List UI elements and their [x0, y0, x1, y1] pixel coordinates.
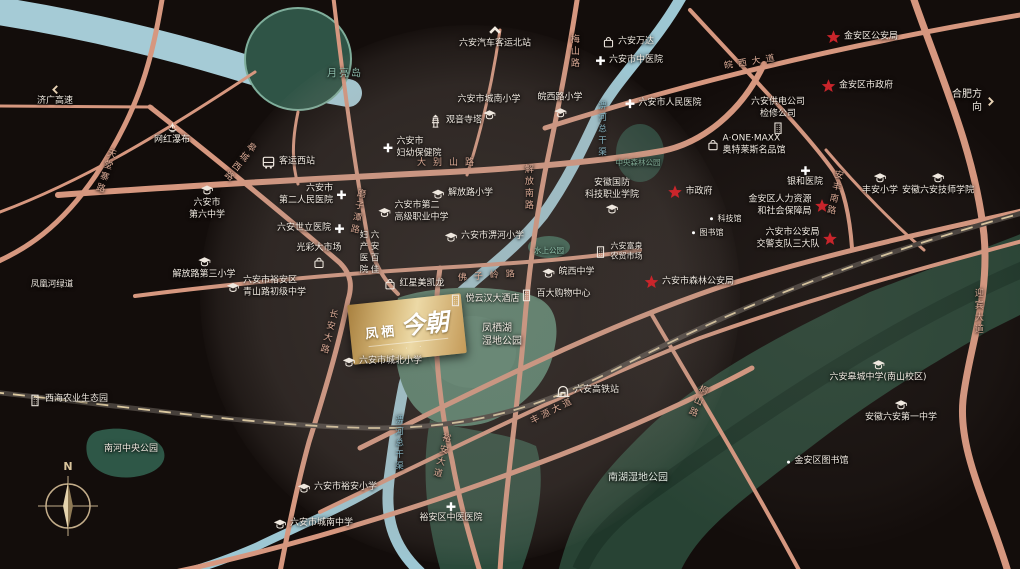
cap-icon	[553, 105, 567, 119]
cap-icon	[297, 481, 311, 495]
poi-wanxi-middle-school: 皖西中学	[541, 266, 594, 280]
bag-icon	[706, 139, 719, 152]
maternity-care-hospital-label: 六安市 妇幼保健院	[396, 136, 441, 159]
poi-jiguang-expressway-sign: 济广高速	[37, 84, 73, 108]
poi-moon-island: 月亮岛	[327, 68, 363, 81]
no2-vocational-school-label: 六安市第二 高级职业中学	[394, 200, 448, 223]
dot-icon	[691, 230, 697, 236]
poi-wanxilu-primary: 皖西路小学	[537, 93, 582, 120]
poi-hefei-direction-sign: 合肥方向	[948, 88, 996, 114]
cap-icon	[894, 398, 908, 412]
nanhe-central-park-label: 南河中央公园	[104, 444, 158, 456]
baida-shopping-center-label: 百大购物中心	[536, 289, 590, 301]
poi-anhui-luan-no1-middle-school: 安徽六安第一中学	[865, 398, 937, 425]
poi-wanda-mall: 六安万达	[602, 36, 654, 49]
cross-icon	[334, 224, 345, 235]
cap-icon	[482, 107, 496, 121]
jiguang-expressway-sign-label: 济广高速	[37, 96, 73, 108]
changan-road-label: 长安大路	[316, 307, 339, 356]
fengyuan-avenue-label: 丰源大道	[529, 396, 577, 428]
poi-no2-vocational-school: 六安市第二 高级职业中学	[377, 200, 448, 223]
poi-anfengnan-road: 安丰南路	[822, 168, 843, 217]
train-icon	[555, 383, 571, 399]
poi-city-hall: 市政府	[667, 185, 712, 200]
fenghuang-river-greenway-label: 凤凰河绿道	[31, 279, 74, 290]
yunhan-hotel-label: 悦云汉大酒店	[465, 294, 519, 306]
north-bus-station-sign-label: 六安汽车客运北站	[459, 39, 531, 51]
poi-pihe-main-channel-south: 淠河总干渠	[392, 415, 403, 473]
cross-icon	[799, 165, 810, 176]
aone-maxx-outlets-label: A·ONE·MAXX 奥特莱斯名品馆	[722, 133, 785, 156]
poi-tcm-hospital: 六安市中医院	[595, 55, 663, 67]
poi-chengbei-primary: 六安市城北小学	[342, 355, 422, 369]
building-icon	[448, 293, 462, 307]
yingbin-avenue-label: 迎宾大道	[971, 288, 983, 336]
cross-icon	[336, 190, 347, 201]
poi-yunhan-hotel: 悦云汉大酒店	[448, 293, 519, 307]
tongshan-road-label: 桐山路	[683, 382, 708, 420]
poi-yingbin-avenue: 迎宾大道	[971, 288, 983, 336]
poi-wanghong-waterfall: 网红瀑布	[154, 121, 190, 147]
fuquan-farmers-market-label: 六安富泉 农贸市场	[611, 242, 643, 263]
poi-guanyin-pagoda: 观音寺塔	[428, 114, 482, 129]
poi-qingshanlu-junior-middle-school: 六安市裕安区 青山路初级中学	[226, 275, 306, 298]
poi-gaochengxi-road: 皋城西路	[219, 138, 258, 183]
cap-icon	[431, 187, 445, 201]
poi-jiefanglu-primary: 解放路小学	[431, 187, 493, 201]
poi-xihai-agriculture-eco-park: 西海农业生态园	[28, 393, 108, 407]
forest-police-bureau-label: 六安市森林公安局	[662, 276, 734, 288]
gaochengxi-road-label: 皋城西路	[219, 138, 258, 183]
map-stage: 凤栖 今朝 · · · 济广高速六安汽车客运北站合肥方向网红瀑布客运西站月亮岛梅…	[0, 0, 1020, 569]
compass-rose-icon	[36, 474, 100, 538]
tiantangzhai-road-label: 天堂寨路	[91, 146, 117, 195]
chengbei-primary-label: 六安市城北小学	[359, 356, 422, 368]
poi-baida-shopping-center: 百大购物中心	[519, 288, 590, 302]
chev-right-icon	[985, 96, 996, 107]
poi-north-bus-station-sign: 六安汽车客运北站	[459, 24, 531, 51]
star-icon	[823, 232, 838, 247]
star-icon	[826, 30, 841, 45]
poi-hongxing-meikailong: 红星美凯龙	[383, 278, 444, 291]
cap-icon	[226, 280, 240, 294]
poi-baijia-maternity-hospital: 六安百佳 妇产医院	[357, 230, 379, 276]
jinan-district-govt-label: 金安区市政府	[839, 80, 893, 92]
cross-icon	[595, 56, 606, 67]
pagoda-icon	[428, 114, 443, 129]
guofang-tech-college-label: 安徽国防 科技职业学院	[585, 178, 639, 201]
cross-icon	[382, 143, 393, 154]
poi-nanhe-central-park: 南河中央公园	[104, 444, 158, 456]
cap-icon	[541, 266, 555, 280]
chev-up-icon	[488, 24, 502, 38]
no2-renmin-hospital-label: 六安市 第二人民医院	[279, 183, 333, 206]
wanghong-waterfall-label: 网红瀑布	[154, 135, 190, 147]
poi-nanhu-wetland-park: 南湖湿地公园	[608, 472, 668, 485]
library-label: 图书馆	[700, 228, 724, 238]
cap-icon	[873, 171, 887, 185]
bag-icon	[383, 278, 396, 291]
poi-renmin-hospital: 六安市人民医院	[624, 98, 701, 110]
no6-middle-school-label: 六安市 第六中学	[189, 198, 225, 221]
poi-fengqi-lake-wetland-park: 凤栖湖 湿地公园	[482, 322, 522, 348]
pihe-main-channel-north-label: 淠河总干渠	[595, 101, 606, 159]
chev-left-icon	[49, 84, 60, 95]
building-icon	[594, 245, 608, 259]
cross-icon	[624, 99, 635, 110]
cap-icon	[871, 358, 885, 372]
jiefangnan-road-label: 解放南路	[521, 164, 533, 212]
poi-changan-road: 长安大路	[316, 307, 339, 356]
poi-meishan-road: 梅山路	[567, 34, 579, 70]
building-icon	[519, 288, 533, 302]
shili-hospital-label: 六安世立医院	[277, 223, 331, 235]
poi-no6-middle-school: 六安市 第六中学	[189, 183, 225, 221]
nanhu-wetland-park-label: 南湖湿地公园	[608, 472, 668, 485]
jiefanglu-primary-label: 解放路小学	[448, 188, 493, 200]
poi-luan-hsr-station: 六安高铁站	[555, 383, 619, 399]
cross-icon	[445, 501, 456, 512]
baijia-maternity-hospital-label: 六安百佳 妇产医院	[357, 230, 379, 276]
fengqi-lake-wetland-park-label: 凤栖湖 湿地公园	[482, 322, 522, 348]
hefei-direction-sign-label: 合肥方向	[948, 88, 982, 114]
poi-chengnan-middle-school: 六安市城南中学	[273, 517, 353, 531]
poi-layer: 济广高速六安汽车客运北站合肥方向网红瀑布客运西站月亮岛梅山路六安万达六安市中医院…	[0, 0, 1020, 569]
poi-science-museum: 科技馆	[709, 214, 742, 224]
poi-forest-police-bureau: 六安市森林公安局	[644, 275, 734, 290]
hr-social-security-bureau-label: 金安区人力资源 和社会保障局	[748, 194, 811, 217]
wanxilu-primary-label: 皖西路小学	[537, 93, 582, 105]
poi-luan-technician-college: 安徽六安技师学院	[902, 171, 974, 198]
pihe-main-channel-south-label: 淠河总干渠	[392, 415, 403, 473]
luan-technician-college-label: 安徽六安技师学院	[902, 186, 974, 198]
wanda-mall-label: 六安万达	[618, 36, 654, 48]
gaocheng-middle-school-label: 六安皋城中学(南山校区)	[829, 373, 926, 385]
star-icon	[821, 79, 836, 94]
dot-icon	[785, 459, 791, 465]
chengnan-primary-label: 六安市城南小学	[457, 95, 520, 107]
qingshanlu-junior-middle-school-label: 六安市裕安区 青山路初级中学	[243, 275, 306, 298]
yuanqu-tcm-hospital-label: 裕安区中医医院	[419, 513, 482, 525]
cap-icon	[377, 205, 391, 219]
poi-jiefanglu-no3-primary: 解放路第三小学	[172, 255, 235, 282]
poi-power-supply-company: 六安供电公司 检修公司	[751, 97, 805, 135]
poi-yuanqu-tcm-hospital: 裕安区中医医院	[419, 501, 482, 525]
cap-icon	[605, 202, 619, 216]
hongxing-meikailong-label: 红星美凯龙	[399, 278, 444, 290]
poi-fengyuan-avenue: 丰源大道	[529, 396, 577, 428]
fountain-icon	[165, 121, 178, 134]
luan-hsr-station-label: 六安高铁站	[574, 385, 619, 397]
science-museum-label: 科技馆	[718, 214, 742, 224]
poi-pihe-main-channel-north: 淠河总干渠	[595, 101, 606, 159]
poi-shili-hospital: 六安世立医院	[277, 223, 345, 235]
cap-icon	[197, 255, 211, 269]
fengan-primary-label: 丰安小学	[862, 186, 898, 198]
dot-icon	[709, 216, 715, 222]
poi-pihe-primary: 六安市淠河小学	[444, 230, 524, 244]
cap-icon	[444, 230, 458, 244]
cap-icon	[273, 517, 287, 531]
poi-west-bus-station: 客运西站	[261, 155, 315, 170]
poi-library: 图书馆	[691, 228, 724, 238]
bus-icon	[261, 155, 276, 170]
building-icon	[28, 393, 42, 407]
poi-central-forest-park: 中央森林公园	[616, 158, 661, 168]
bag-icon	[602, 36, 615, 49]
poi-water-park: 水上公园	[534, 246, 564, 256]
poi-foziling-road: 佛子岭路	[458, 269, 523, 285]
poi-jiefangnan-road: 解放南路	[521, 164, 533, 212]
poi-jinan-district-library: 金安区图书馆	[785, 456, 848, 468]
poi-yuan-primary: 六安市裕安小学	[297, 481, 377, 495]
poi-yinhe-hospital: 银和医院	[787, 165, 823, 189]
central-forest-park-label: 中央森林公园	[616, 158, 661, 168]
anfengnan-road-label: 安丰南路	[822, 168, 843, 217]
poi-fengan-primary: 丰安小学	[862, 171, 898, 198]
xihai-agriculture-eco-park-label: 西海农业生态园	[45, 394, 108, 406]
poi-tiantangzhai-road: 天堂寨路	[91, 146, 117, 195]
poi-guofang-tech-college: 安徽国防 科技职业学院	[585, 178, 639, 216]
poi-gaocheng-middle-school: 六安皋城中学(南山校区)	[829, 358, 926, 385]
dabieshan-road-label: 大别山路	[417, 158, 481, 170]
cap-icon	[342, 355, 356, 369]
compass: N	[36, 460, 100, 538]
foziling-road-label: 佛子岭路	[458, 269, 523, 285]
yinhe-hospital-label: 银和医院	[787, 177, 823, 189]
yuan-avenue-label: 裕安大道	[429, 431, 452, 480]
poi-yuan-avenue: 裕安大道	[429, 431, 452, 480]
guangcai-market-label: 光彩大市场	[296, 243, 341, 255]
poi-tongshan-road: 桐山路	[683, 382, 708, 420]
jinan-district-police-label: 金安区公安局	[844, 31, 898, 43]
city-hall-label: 市政府	[685, 186, 712, 198]
star-icon	[667, 185, 682, 200]
poi-hr-social-security-bureau: 金安区人力资源 和社会保障局	[748, 194, 829, 217]
pihe-primary-label: 六安市淠河小学	[461, 231, 524, 243]
poi-wanxi-avenue: 皖西大道	[723, 53, 780, 73]
compass-north-label: N	[63, 460, 72, 473]
west-bus-station-label: 客运西站	[279, 156, 315, 168]
power-supply-company-label: 六安供电公司 检修公司	[751, 97, 805, 120]
renmin-hospital-label: 六安市人民医院	[638, 98, 701, 110]
anhui-luan-no1-middle-school-label: 安徽六安第一中学	[865, 413, 937, 425]
moon-island-label: 月亮岛	[327, 68, 363, 81]
guanyin-pagoda-label: 观音寺塔	[446, 115, 482, 127]
cap-icon	[931, 171, 945, 185]
tcm-hospital-label: 六安市中医院	[609, 55, 663, 67]
poi-fuquan-farmers-market: 六安富泉 农贸市场	[594, 242, 643, 263]
cap-icon	[200, 183, 214, 197]
poi-traffic-police-no3: 六安市公安局 交警支队三大队	[756, 227, 837, 250]
meishan-road-label: 梅山路	[567, 34, 579, 70]
poi-aone-maxx-outlets: A·ONE·MAXX 奥特莱斯名品馆	[706, 133, 785, 156]
poi-no2-renmin-hospital: 六安市 第二人民医院	[279, 183, 347, 206]
bag-icon	[312, 256, 325, 269]
wanxi-middle-school-label: 皖西中学	[558, 267, 594, 279]
jinan-district-library-label: 金安区图书馆	[794, 456, 848, 468]
wanxi-avenue-label: 皖西大道	[723, 53, 780, 73]
water-park-label: 水上公园	[534, 246, 564, 256]
star-icon	[644, 275, 659, 290]
poi-maternity-care-hospital: 六安市 妇幼保健院	[382, 136, 441, 159]
yuan-primary-label: 六安市裕安小学	[314, 482, 377, 494]
poi-guangcai-market: 光彩大市场	[296, 243, 341, 269]
jiefanglu-no3-primary-label: 解放路第三小学	[172, 270, 235, 282]
poi-jinan-district-police: 金安区公安局	[826, 30, 898, 45]
poi-dabieshan-road: 大别山路	[417, 158, 481, 170]
poi-jinan-district-govt: 金安区市政府	[821, 79, 893, 94]
traffic-police-no3-label: 六安市公安局 交警支队三大队	[756, 227, 819, 250]
poi-fenghuang-river-greenway: 凤凰河绿道	[31, 279, 74, 290]
chengnan-middle-school-label: 六安市城南中学	[290, 518, 353, 530]
